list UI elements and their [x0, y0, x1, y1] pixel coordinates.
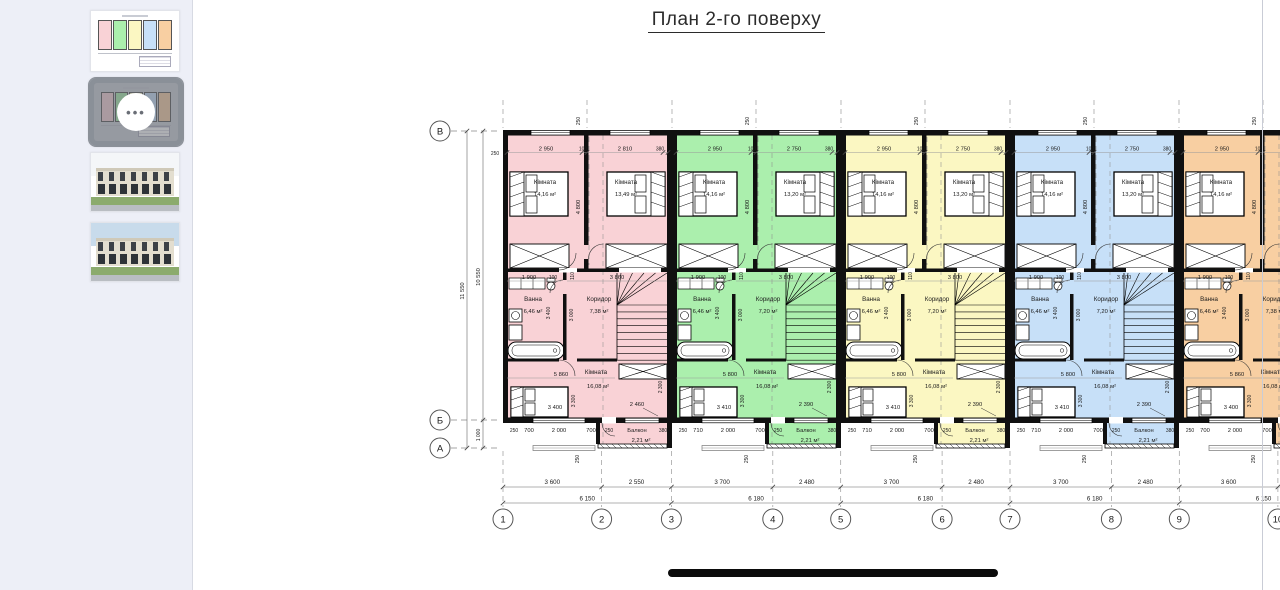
svg-text:250: 250 — [914, 117, 920, 126]
svg-text:1: 1 — [500, 515, 505, 526]
svg-text:250: 250 — [1017, 428, 1026, 434]
svg-text:7,38 м²: 7,38 м² — [590, 309, 609, 315]
svg-text:100: 100 — [887, 275, 896, 281]
svg-text:380: 380 — [1163, 147, 1172, 153]
svg-text:250: 250 — [1082, 455, 1088, 464]
svg-text:2 750: 2 750 — [787, 147, 802, 153]
svg-text:100: 100 — [579, 147, 588, 153]
svg-text:Коридор: Коридор — [1094, 296, 1119, 303]
right-scrollbar-track — [1262, 0, 1263, 590]
svg-text:А: А — [437, 443, 444, 454]
svg-text:3 800: 3 800 — [779, 275, 794, 281]
svg-text:5 860: 5 860 — [554, 372, 569, 378]
svg-text:Балкон: Балкон — [1134, 428, 1153, 434]
svg-text:2 950: 2 950 — [1046, 147, 1061, 153]
svg-text:380: 380 — [1166, 428, 1175, 434]
svg-text:1 000: 1 000 — [476, 429, 482, 442]
svg-text:7,20 м²: 7,20 м² — [1097, 309, 1116, 315]
svg-text:1 900: 1 900 — [691, 275, 706, 281]
svg-text:16,08 м²: 16,08 м² — [925, 384, 947, 390]
svg-text:Кімната: Кімната — [703, 179, 726, 186]
svg-text:100: 100 — [748, 147, 757, 153]
bottom-scrollbar[interactable] — [668, 569, 998, 577]
svg-text:2 480: 2 480 — [1138, 479, 1154, 486]
svg-text:2 950: 2 950 — [877, 147, 892, 153]
svg-text:2,21 м²: 2,21 м² — [632, 438, 651, 444]
svg-text:4 800: 4 800 — [745, 200, 751, 215]
svg-text:2 810: 2 810 — [618, 147, 633, 153]
svg-text:3 000: 3 000 — [738, 309, 744, 322]
svg-text:4 800: 4 800 — [576, 200, 582, 215]
svg-text:Ванна: Ванна — [524, 296, 542, 303]
svg-text:5 800: 5 800 — [1061, 372, 1076, 378]
svg-text:14,16 м²: 14,16 м² — [872, 192, 894, 198]
svg-text:Ванна: Ванна — [1031, 296, 1049, 303]
more-options-icon[interactable]: ••• — [117, 93, 155, 131]
svg-text:250: 250 — [576, 117, 582, 126]
svg-text:6 150: 6 150 — [1256, 496, 1272, 503]
svg-text:700: 700 — [1200, 428, 1210, 434]
svg-text:Кімната: Кімната — [585, 369, 608, 376]
svg-text:380: 380 — [994, 147, 1003, 153]
svg-text:6,46 м²: 6,46 м² — [862, 309, 881, 315]
svg-text:3 300: 3 300 — [1078, 395, 1084, 408]
svg-text:250: 250 — [848, 428, 857, 434]
svg-text:3 860: 3 860 — [610, 275, 625, 281]
svg-text:3 400: 3 400 — [548, 405, 563, 411]
svg-text:3 400: 3 400 — [546, 307, 552, 320]
svg-text:14,16 м²: 14,16 м² — [1041, 192, 1063, 198]
svg-text:2 000: 2 000 — [552, 428, 567, 434]
svg-text:3 600: 3 600 — [1221, 479, 1237, 486]
svg-text:250: 250 — [1186, 428, 1195, 434]
svg-text:3 000: 3 000 — [569, 309, 575, 322]
svg-text:7,20 м²: 7,20 м² — [928, 309, 947, 315]
svg-text:Балкон: Балкон — [796, 428, 815, 434]
svg-text:2,21 м²: 2,21 м² — [1139, 438, 1158, 444]
svg-text:380: 380 — [997, 428, 1006, 434]
svg-text:9: 9 — [1177, 515, 1182, 526]
svg-text:3 600: 3 600 — [545, 479, 561, 486]
svg-text:2 750: 2 750 — [1125, 147, 1140, 153]
svg-text:10 550: 10 550 — [476, 268, 482, 286]
svg-text:Ванна: Ванна — [693, 296, 711, 303]
svg-text:Кімната: Кімната — [784, 179, 807, 186]
svg-text:3 300: 3 300 — [740, 395, 746, 408]
svg-text:3 000: 3 000 — [1076, 309, 1082, 322]
svg-text:6,46 м²: 6,46 м² — [1200, 309, 1219, 315]
svg-text:13,20 м²: 13,20 м² — [953, 192, 975, 198]
svg-text:6,46 м²: 6,46 м² — [1031, 309, 1050, 315]
svg-text:14,16 м²: 14,16 м² — [534, 192, 556, 198]
svg-text:250: 250 — [491, 151, 500, 157]
svg-text:710: 710 — [1031, 428, 1041, 434]
svg-text:110: 110 — [570, 272, 576, 280]
thumbnail-floor-plan-1[interactable] — [90, 10, 180, 72]
svg-text:4 800: 4 800 — [914, 200, 920, 215]
svg-text:2 390: 2 390 — [1137, 402, 1152, 408]
svg-text:Кімната: Кімната — [1261, 369, 1280, 376]
svg-text:250: 250 — [745, 117, 751, 126]
svg-text:1 900: 1 900 — [1198, 275, 1213, 281]
svg-text:6,46 м²: 6,46 м² — [693, 309, 712, 315]
svg-text:5 860: 5 860 — [1230, 372, 1245, 378]
svg-text:250: 250 — [679, 428, 688, 434]
svg-text:3 410: 3 410 — [1055, 405, 1070, 411]
svg-text:100: 100 — [1056, 275, 1065, 281]
svg-text:10: 10 — [1273, 515, 1280, 526]
svg-text:13,20 м²: 13,20 м² — [784, 192, 806, 198]
svg-text:5 800: 5 800 — [892, 372, 907, 378]
svg-text:3 700: 3 700 — [714, 479, 730, 486]
svg-text:3 300: 3 300 — [909, 395, 915, 408]
svg-text:700: 700 — [924, 428, 934, 434]
svg-text:2 300: 2 300 — [996, 381, 1002, 394]
svg-text:250: 250 — [913, 455, 919, 464]
svg-text:7,38 м²: 7,38 м² — [1266, 309, 1280, 315]
svg-text:3 410: 3 410 — [717, 405, 732, 411]
svg-text:2 750: 2 750 — [956, 147, 971, 153]
svg-text:5 800: 5 800 — [723, 372, 738, 378]
thumbnail-exterior-render-perspective[interactable] — [90, 222, 180, 282]
svg-text:Кімната: Кімната — [615, 179, 638, 186]
svg-text:Кімната: Кімната — [1041, 179, 1064, 186]
svg-text:16,08 м²: 16,08 м² — [756, 384, 778, 390]
svg-text:Кімната: Кімната — [872, 179, 895, 186]
svg-text:13,49 м²: 13,49 м² — [615, 192, 637, 198]
svg-text:700: 700 — [1093, 428, 1103, 434]
svg-text:3 800: 3 800 — [1117, 275, 1132, 281]
svg-text:250: 250 — [510, 428, 519, 434]
svg-text:2 950: 2 950 — [708, 147, 723, 153]
svg-text:Коридор: Коридор — [587, 296, 612, 303]
svg-text:110: 110 — [739, 272, 745, 280]
svg-text:Коридор: Коридор — [756, 296, 781, 303]
page: ••• План 2-го поверху 2 9501002 81038025… — [0, 0, 1280, 590]
thumbnail-floor-plan-2-selected[interactable]: ••• — [88, 77, 184, 147]
svg-text:6: 6 — [939, 515, 944, 526]
svg-text:16,08 м²: 16,08 м² — [587, 384, 609, 390]
svg-text:3 300: 3 300 — [1247, 395, 1253, 408]
svg-text:В: В — [437, 126, 443, 137]
svg-text:6 180: 6 180 — [918, 496, 934, 503]
svg-text:Кімната: Кімната — [1122, 179, 1145, 186]
svg-text:Балкон: Балкон — [627, 428, 646, 434]
thumbnail-exterior-render-front[interactable] — [90, 152, 180, 212]
svg-text:3 400: 3 400 — [1224, 405, 1239, 411]
svg-text:250: 250 — [605, 428, 614, 434]
svg-text:5: 5 — [838, 515, 843, 526]
svg-text:1 900: 1 900 — [522, 275, 537, 281]
svg-text:11 550: 11 550 — [460, 282, 466, 299]
svg-text:6,46 м²: 6,46 м² — [524, 309, 543, 315]
svg-text:250: 250 — [575, 455, 581, 464]
exterior-render-image — [91, 153, 179, 211]
svg-text:6 180: 6 180 — [748, 496, 764, 503]
svg-text:100: 100 — [1225, 275, 1234, 281]
svg-text:3 410: 3 410 — [886, 405, 901, 411]
svg-text:700: 700 — [755, 428, 765, 434]
svg-text:13,20 м²: 13,20 м² — [1122, 192, 1144, 198]
svg-text:2,21 м²: 2,21 м² — [970, 438, 989, 444]
svg-text:4: 4 — [770, 515, 775, 526]
svg-text:100: 100 — [718, 275, 727, 281]
svg-text:2 300: 2 300 — [827, 381, 833, 394]
svg-text:Балкон: Балкон — [965, 428, 984, 434]
svg-text:250: 250 — [1083, 117, 1089, 126]
svg-text:2 300: 2 300 — [658, 381, 664, 394]
svg-text:Ванна: Ванна — [1200, 296, 1218, 303]
svg-text:7,20 м²: 7,20 м² — [759, 309, 778, 315]
svg-text:2,21 м²: 2,21 м² — [801, 438, 820, 444]
svg-text:2 000: 2 000 — [721, 428, 736, 434]
svg-text:2 000: 2 000 — [890, 428, 905, 434]
svg-text:2 480: 2 480 — [968, 479, 984, 486]
svg-text:3 700: 3 700 — [884, 479, 900, 486]
svg-text:8: 8 — [1109, 515, 1114, 526]
svg-text:710: 710 — [862, 428, 872, 434]
svg-text:6 150: 6 150 — [579, 496, 595, 503]
svg-text:380: 380 — [828, 428, 837, 434]
svg-text:2 390: 2 390 — [799, 402, 814, 408]
svg-text:Кімната: Кімната — [923, 369, 946, 376]
svg-text:3 400: 3 400 — [715, 307, 721, 320]
svg-text:Б: Б — [437, 415, 443, 426]
svg-text:380: 380 — [659, 428, 668, 434]
svg-text:Кімната: Кімната — [1092, 369, 1115, 376]
svg-text:Кімната: Кімната — [754, 369, 777, 376]
svg-text:Кімната: Кімната — [534, 179, 557, 186]
floor-plan-mini-image — [91, 11, 179, 71]
svg-text:100: 100 — [549, 275, 558, 281]
svg-text:3 300: 3 300 — [571, 395, 577, 408]
svg-text:2 000: 2 000 — [1059, 428, 1074, 434]
thumbnail-sidebar: ••• — [0, 0, 193, 590]
svg-text:2 460: 2 460 — [630, 402, 645, 408]
svg-text:2: 2 — [599, 515, 604, 526]
svg-text:4 800: 4 800 — [1252, 200, 1258, 215]
svg-text:380: 380 — [656, 147, 665, 153]
svg-text:700: 700 — [524, 428, 534, 434]
svg-text:2 300: 2 300 — [1165, 381, 1171, 394]
svg-text:250: 250 — [1112, 428, 1121, 434]
svg-text:100: 100 — [917, 147, 926, 153]
svg-text:16,08 м²: 16,08 м² — [1094, 384, 1116, 390]
svg-text:250: 250 — [943, 428, 952, 434]
svg-text:380: 380 — [825, 147, 834, 153]
svg-text:3 800: 3 800 — [948, 275, 963, 281]
svg-text:700: 700 — [586, 428, 596, 434]
svg-text:3 700: 3 700 — [1053, 479, 1069, 486]
svg-text:110: 110 — [1246, 272, 1252, 280]
svg-text:2 480: 2 480 — [799, 479, 815, 486]
svg-text:2 390: 2 390 — [968, 402, 983, 408]
svg-text:16,08 м²: 16,08 м² — [1263, 384, 1280, 390]
svg-text:4 800: 4 800 — [1083, 200, 1089, 215]
svg-text:Коридор: Коридор — [925, 296, 950, 303]
svg-text:110: 110 — [1077, 272, 1083, 280]
svg-text:7: 7 — [1007, 515, 1012, 526]
svg-text:2 550: 2 550 — [629, 479, 645, 486]
plan-canvas: План 2-го поверху 2 9501002 810380250Кім… — [193, 0, 1280, 590]
svg-text:710: 710 — [693, 428, 703, 434]
svg-text:3: 3 — [669, 515, 674, 526]
svg-text:Кімната: Кімната — [953, 179, 976, 186]
svg-text:250: 250 — [774, 428, 783, 434]
svg-text:6 180: 6 180 — [1087, 496, 1103, 503]
svg-text:3 400: 3 400 — [1053, 307, 1059, 320]
svg-text:2 950: 2 950 — [539, 147, 554, 153]
exterior-render-image — [91, 223, 179, 281]
svg-text:100: 100 — [1086, 147, 1095, 153]
svg-text:250: 250 — [1252, 117, 1258, 126]
svg-text:Коридор: Коридор — [1263, 296, 1280, 303]
svg-text:Ванна: Ванна — [862, 296, 880, 303]
svg-text:1 900: 1 900 — [1029, 275, 1044, 281]
svg-text:2 000: 2 000 — [1228, 428, 1243, 434]
svg-text:1 900: 1 900 — [860, 275, 875, 281]
page-title: План 2-го поверху — [193, 9, 1280, 33]
svg-text:250: 250 — [1251, 455, 1257, 464]
svg-text:2 950: 2 950 — [1215, 147, 1230, 153]
floor-plan-drawing: 2 9501002 810380250Кімната14,16 м²Кімнат… — [421, 95, 1280, 540]
svg-text:3 000: 3 000 — [907, 309, 913, 322]
svg-text:700: 700 — [1262, 428, 1272, 434]
svg-text:250: 250 — [744, 455, 750, 464]
svg-text:3 000: 3 000 — [1245, 309, 1251, 322]
svg-text:Кімната: Кімната — [1210, 179, 1233, 186]
svg-text:3 400: 3 400 — [884, 307, 890, 320]
svg-text:14,16 м²: 14,16 м² — [1210, 192, 1232, 198]
svg-text:14,16 м²: 14,16 м² — [703, 192, 725, 198]
svg-text:3 400: 3 400 — [1222, 307, 1228, 320]
svg-text:110: 110 — [908, 272, 914, 280]
